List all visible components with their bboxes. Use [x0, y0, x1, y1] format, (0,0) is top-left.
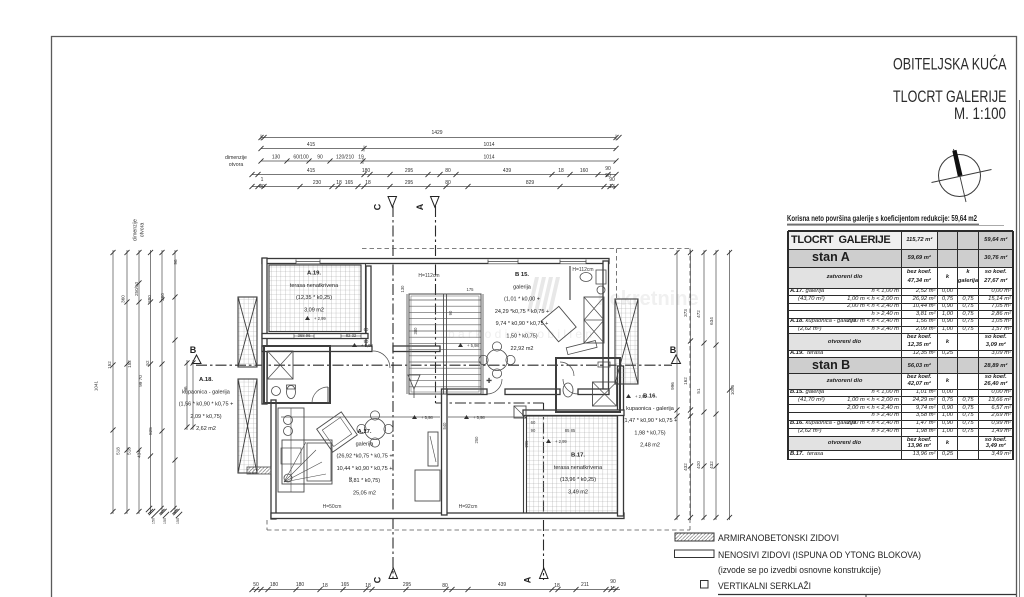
svg-text:(12,35 * k0,25): (12,35 * k0,25) [296, 295, 332, 301]
svg-text:A: A [523, 576, 533, 583]
svg-text:15: 15 [610, 586, 616, 592]
svg-text:80: 80 [259, 184, 265, 190]
svg-text:(izvode se po izvedbi osnovne: (izvode se po izvedbi osnovne konstrukci… [718, 565, 881, 576]
svg-text:373: 373 [683, 309, 688, 317]
svg-text:VERTIKALNI SERKLAŽI: VERTIKALNI SERKLAŽI [718, 581, 811, 592]
svg-text:H=50cm: H=50cm [323, 504, 342, 510]
svg-text:540: 540 [442, 422, 447, 430]
svg-text:518: 518 [116, 447, 121, 455]
svg-text:85 85: 85 85 [565, 428, 576, 433]
svg-text:H=112cm: H=112cm [572, 267, 593, 273]
svg-text:9,74 * k0,90 * k0,75 +: 9,74 * k0,90 * k0,75 + [496, 321, 549, 327]
svg-text:175: 175 [467, 287, 475, 292]
svg-text:M. 1:100: M. 1:100 [954, 105, 1006, 123]
svg-text:1,98 * k0,75): 1,98 * k0,75) [634, 430, 665, 436]
svg-text:NENOSIVI ZIDOVI (ISPUNA OD YTO: NENOSIVI ZIDOVI (ISPUNA OD YTONG BLOKOVA… [718, 550, 921, 561]
svg-text:180: 180 [362, 168, 371, 174]
svg-text:H=92cm: H=92cm [459, 504, 478, 510]
svg-text:1041: 1041 [94, 380, 99, 391]
svg-text:22,92 m2: 22,92 m2 [511, 346, 534, 352]
svg-text:80: 80 [442, 583, 448, 589]
svg-text:dimenzije: dimenzije [225, 155, 247, 161]
svg-text:B.16.: B.16. [643, 394, 657, 400]
svg-text:160: 160 [580, 168, 589, 174]
svg-text:211: 211 [581, 582, 589, 588]
svg-text:+ 2,99: + 2,99 [555, 439, 567, 444]
svg-text:82 32: 82 32 [346, 333, 357, 338]
svg-text:99 70: 99 70 [138, 375, 143, 387]
svg-text:415: 415 [307, 168, 316, 174]
svg-text:otvora: otvora [140, 223, 146, 238]
svg-text:25,05 m2: 25,05 m2 [353, 491, 376, 497]
svg-text:90: 90 [317, 155, 323, 161]
svg-text:150: 150 [152, 518, 156, 524]
svg-text:A: A [415, 203, 425, 210]
svg-text:B.17.: B.17. [571, 453, 585, 459]
svg-text:50: 50 [253, 582, 259, 588]
svg-text:kupaonica - galerija: kupaonica - galerija [182, 389, 231, 395]
svg-text:295: 295 [405, 168, 414, 174]
svg-text:1056: 1056 [730, 384, 735, 395]
svg-text:120/210: 120/210 [336, 155, 354, 161]
svg-text:B 15.: B 15. [515, 272, 529, 278]
svg-text:✚: ✚ [486, 377, 492, 385]
svg-text:380: 380 [413, 327, 418, 335]
svg-text:(1,01 * k0,00 +: (1,01 * k0,00 + [504, 297, 540, 303]
svg-text:162: 162 [683, 377, 688, 385]
svg-text:152: 152 [127, 360, 132, 368]
svg-text:80: 80 [445, 180, 451, 186]
svg-text:250/50: 250/50 [134, 282, 139, 296]
svg-text:380: 380 [147, 295, 152, 303]
svg-text:nekretnine: nekretnine [597, 288, 698, 310]
svg-text:terasa nenatkrivena: terasa nenatkrivena [290, 283, 339, 289]
svg-text:250: 250 [474, 436, 479, 444]
svg-text:518: 518 [127, 447, 132, 455]
svg-text:OBITELJSKA KUĆA: OBITELJSKA KUĆA [893, 55, 1007, 74]
svg-text:90: 90 [364, 339, 369, 344]
svg-text:150: 150 [163, 518, 167, 524]
svg-text:10,44 * k0,90 * k0,75 +: 10,44 * k0,90 * k0,75 + [337, 466, 393, 472]
svg-text:18: 18 [365, 583, 371, 589]
svg-text:1,50 * k0,75): 1,50 * k0,75) [506, 334, 537, 340]
svg-text:2,62 m2: 2,62 m2 [196, 426, 216, 432]
svg-text:+ 5,98: + 5,98 [467, 343, 479, 348]
svg-text:415: 415 [307, 142, 316, 148]
svg-text:368 96: 368 96 [298, 333, 311, 338]
svg-text:C: C [373, 203, 383, 210]
svg-text:60/100: 60/100 [293, 155, 309, 161]
svg-text:13: 13 [609, 184, 615, 190]
svg-text:130: 130 [272, 155, 281, 161]
svg-text:A.18.: A.18. [199, 377, 213, 383]
svg-text:434: 434 [137, 450, 142, 458]
svg-text:432: 432 [709, 461, 714, 469]
svg-text:+ 5,98: + 5,98 [421, 415, 433, 420]
svg-text:3,81 * k0,75): 3,81 * k0,75) [349, 478, 380, 484]
svg-text:825: 825 [148, 427, 153, 435]
svg-text:18: 18 [554, 583, 560, 589]
svg-text:3,09 m2: 3,09 m2 [304, 307, 324, 313]
svg-text:+ 2,99: + 2,99 [314, 316, 326, 321]
svg-text:60: 60 [531, 420, 536, 425]
svg-text:Korisna neto površina galerije: Korisna neto površina galerije s koefici… [787, 213, 977, 223]
svg-text:19: 19 [358, 155, 364, 161]
svg-text:(26,92 *k0,75 * k0,75 +: (26,92 *k0,75 * k0,75 + [336, 454, 392, 460]
svg-text:432: 432 [683, 463, 688, 471]
svg-text:B: B [190, 345, 197, 355]
svg-text:90: 90 [609, 177, 615, 183]
svg-text:A.17.: A.17. [357, 429, 371, 435]
svg-text:180: 180 [270, 582, 279, 588]
svg-text:H=112cm: H=112cm [418, 273, 439, 279]
svg-text:1014: 1014 [483, 155, 494, 161]
svg-text:634: 634 [709, 317, 714, 325]
svg-text:dimenzije: dimenzije [133, 219, 139, 241]
svg-text:24,29 *k0,75 * k0,75 +: 24,29 *k0,75 * k0,75 + [495, 309, 549, 315]
svg-text:A.19.: A.19. [307, 271, 321, 277]
svg-text:96: 96 [173, 259, 178, 265]
svg-text:(1,47 * k0,90 * k0,75 +: (1,47 * k0,90 * k0,75 + [623, 418, 678, 424]
svg-text:1429: 1429 [431, 130, 442, 136]
svg-text:18: 18 [336, 180, 342, 186]
svg-text:295: 295 [405, 180, 414, 186]
svg-text:360: 360 [121, 295, 126, 303]
svg-text:C: C [373, 576, 383, 583]
svg-text:90: 90 [610, 579, 616, 585]
svg-text:360: 360 [160, 293, 165, 301]
svg-text:ARMIRANOBETONSKI ZIDOVI: ARMIRANOBETONSKI ZIDOVI [718, 533, 839, 544]
svg-text:galerija: galerija [513, 284, 532, 290]
svg-text:2,48 m2: 2,48 m2 [640, 443, 660, 449]
svg-text:130: 130 [400, 285, 405, 293]
svg-text:180: 180 [296, 582, 305, 588]
svg-text:150: 150 [176, 518, 180, 524]
svg-text:+ 5,98: + 5,98 [473, 415, 485, 420]
svg-text:3,49 m2: 3,49 m2 [568, 489, 588, 495]
svg-text:90: 90 [531, 428, 536, 433]
svg-text:60: 60 [364, 327, 369, 332]
svg-text:51: 51 [696, 388, 701, 394]
svg-text:829: 829 [526, 180, 535, 186]
svg-text:295: 295 [403, 582, 412, 588]
svg-text:472: 472 [696, 310, 701, 318]
svg-text:205: 205 [524, 440, 529, 448]
svg-text:439: 439 [503, 168, 512, 174]
svg-text:439: 439 [498, 582, 507, 588]
svg-text:52: 52 [145, 360, 150, 366]
svg-text:terasa nenatkrivena: terasa nenatkrivena [554, 465, 603, 471]
svg-text:152: 152 [107, 361, 112, 369]
svg-text:230: 230 [313, 180, 322, 186]
svg-text:165: 165 [341, 582, 350, 588]
svg-text:otvora: otvora [229, 162, 244, 168]
svg-text:1: 1 [261, 177, 264, 183]
svg-text:2,09 * k0,75): 2,09 * k0,75) [190, 414, 221, 420]
svg-text:18: 18 [558, 168, 564, 174]
svg-text:80: 80 [445, 168, 451, 174]
svg-text:TLOCRT GALERIJE: TLOCRT GALERIJE [893, 88, 1007, 106]
svg-text:(13,96 * k0,25): (13,96 * k0,25) [560, 477, 596, 483]
svg-text:996: 996 [670, 382, 675, 390]
svg-text:1014: 1014 [483, 142, 494, 148]
svg-text:18: 18 [365, 180, 371, 186]
svg-text:90: 90 [448, 310, 453, 315]
svg-text:galerija: galerija [356, 441, 375, 447]
svg-text:B: B [670, 345, 677, 355]
svg-text:420: 420 [696, 461, 701, 469]
svg-text:kupaonica - galerija: kupaonica - galerija [626, 406, 675, 412]
svg-text:90: 90 [605, 166, 611, 172]
svg-text:165: 165 [345, 180, 354, 186]
svg-text:18: 18 [322, 583, 328, 589]
